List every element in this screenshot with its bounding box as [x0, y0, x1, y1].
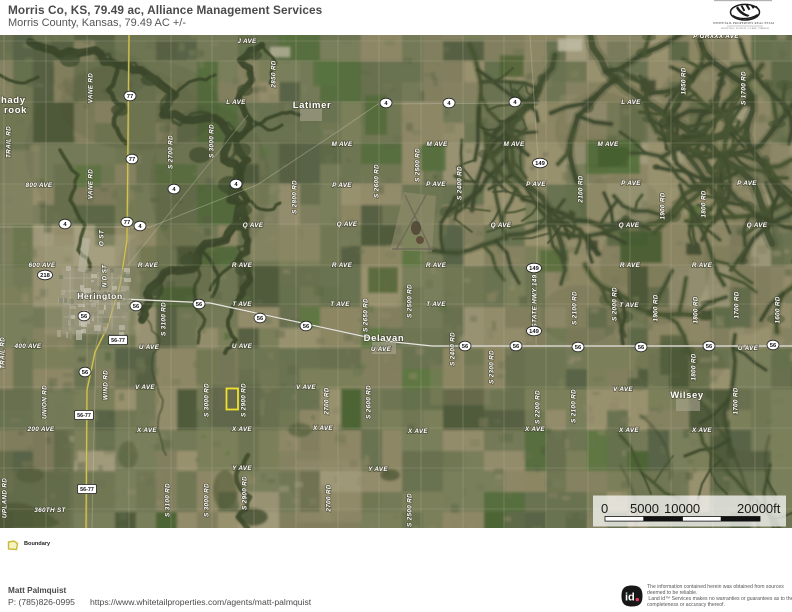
svg-text:56: 56 — [257, 316, 264, 322]
svg-text:U AVE: U AVE — [371, 346, 392, 353]
svg-text:STATE HWY 149: STATE HWY 149 — [531, 274, 538, 327]
svg-text:1700 RD: 1700 RD — [732, 387, 739, 414]
svg-text:TRAIL RD: TRAIL RD — [5, 126, 12, 158]
svg-text:56-77: 56-77 — [111, 338, 125, 344]
svg-text:rook: rook — [4, 105, 27, 116]
svg-text:M AVE: M AVE — [503, 141, 524, 148]
svg-text:S 2650 RD: S 2650 RD — [362, 298, 369, 332]
svg-text:2700 RD: 2700 RD — [325, 484, 332, 512]
svg-text:77: 77 — [129, 157, 135, 163]
svg-text:S 3000 RD: S 3000 RD — [203, 483, 210, 517]
svg-text:S 2500 RD: S 2500 RD — [406, 493, 413, 527]
svg-text:149: 149 — [535, 161, 545, 167]
svg-text:Q AVE: Q AVE — [337, 221, 358, 228]
svg-text:S 3000 RD: S 3000 RD — [203, 383, 210, 417]
svg-text:X AVE: X AVE — [691, 427, 712, 434]
svg-text:P AVE: P AVE — [526, 181, 546, 188]
svg-text:UNION RD: UNION RD — [41, 385, 48, 419]
svg-text:56: 56 — [133, 304, 140, 310]
svg-text:HUNTING | RANCH | FARM | TIMBE: HUNTING | RANCH | FARM | TIMBER — [721, 27, 769, 30]
svg-text:N D ST: N D ST — [101, 264, 108, 288]
svg-text:20000ft: 20000ft — [737, 501, 781, 516]
svg-text:56: 56 — [770, 343, 777, 349]
svg-text:P AVE: P AVE — [621, 180, 641, 187]
svg-text:149: 149 — [529, 266, 539, 272]
svg-text:1850 RD: 1850 RD — [680, 67, 687, 94]
svg-text:56: 56 — [462, 344, 469, 350]
svg-text:0: 0 — [601, 501, 608, 516]
svg-text:R AVE: R AVE — [232, 262, 253, 269]
svg-text:X AVE: X AVE — [312, 425, 333, 432]
svg-text:P AVE: P AVE — [332, 182, 352, 189]
svg-text:Wilsey: Wilsey — [670, 390, 704, 401]
svg-text:S 1700 RD: S 1700 RD — [740, 71, 747, 105]
svg-text:M AVE: M AVE — [331, 141, 352, 148]
svg-text:S 2400 RD: S 2400 RD — [449, 332, 456, 366]
svg-text:56: 56 — [706, 344, 713, 350]
svg-text:Delavan: Delavan — [364, 333, 405, 344]
svg-text:id: id — [625, 592, 635, 604]
svg-text:5000: 5000 — [630, 501, 659, 516]
svg-text:56-77: 56-77 — [80, 487, 94, 493]
svg-text:S 2800 RD: S 2800 RD — [291, 180, 298, 214]
svg-text:800 AVE: 800 AVE — [26, 182, 53, 189]
svg-text:2850 RD: 2850 RD — [270, 60, 277, 88]
svg-text:X AVE: X AVE — [231, 426, 252, 433]
svg-text:1600 RD: 1600 RD — [774, 296, 781, 323]
svg-text:M AVE: M AVE — [597, 141, 618, 148]
svg-text:Herington: Herington — [77, 291, 123, 301]
svg-text:200 AVE: 200 AVE — [27, 426, 55, 433]
svg-text:56: 56 — [82, 370, 89, 376]
svg-text:UPLAND RD: UPLAND RD — [1, 478, 8, 518]
svg-text:S 2600 RD: S 2600 RD — [373, 164, 380, 198]
svg-text:V AVE: V AVE — [613, 386, 633, 393]
svg-text:X AVE: X AVE — [136, 427, 157, 434]
svg-text:O ST: O ST — [98, 229, 105, 246]
svg-text:S 2100 RD: S 2100 RD — [571, 291, 578, 325]
svg-text:R AVE: R AVE — [692, 262, 713, 269]
svg-text:S 2900 RD: S 2900 RD — [241, 476, 248, 510]
svg-text:S 2700 RD: S 2700 RD — [167, 135, 174, 169]
svg-text:L AVE: L AVE — [621, 99, 641, 106]
svg-text:R AVE: R AVE — [332, 262, 353, 269]
svg-text:77: 77 — [124, 220, 130, 226]
svg-text:VANE RD: VANE RD — [87, 169, 94, 199]
svg-text:2100 RD: 2100 RD — [577, 175, 584, 203]
svg-text:J AVE: J AVE — [237, 38, 257, 45]
svg-text:10000: 10000 — [664, 501, 700, 516]
svg-text:56: 56 — [196, 302, 203, 308]
svg-text:56: 56 — [638, 345, 645, 351]
svg-text:T AVE: T AVE — [330, 301, 350, 308]
svg-text:Q AVE: Q AVE — [619, 222, 640, 229]
svg-text:1900 RD: 1900 RD — [652, 294, 659, 321]
svg-text:S 2400 RD: S 2400 RD — [456, 166, 463, 200]
svg-text:S 2200 RD: S 2200 RD — [534, 390, 541, 424]
svg-text:WHITETAIL PROPERTIES REAL ESTA: WHITETAIL PROPERTIES REAL ESTATE — [713, 21, 774, 25]
svg-text:Q AVE: Q AVE — [243, 222, 264, 229]
svg-text:56: 56 — [81, 314, 88, 320]
svg-text:M AVE: M AVE — [426, 141, 447, 148]
svg-text:S 2600 RD: S 2600 RD — [365, 385, 372, 419]
svg-text:V AVE: V AVE — [135, 384, 155, 391]
svg-text:TRAIL RD: TRAIL RD — [0, 337, 6, 369]
svg-text:Y AVE: Y AVE — [232, 465, 252, 472]
svg-text:400 AVE: 400 AVE — [14, 343, 42, 350]
svg-text:U AVE: U AVE — [738, 345, 759, 352]
svg-text:1700 RD: 1700 RD — [733, 291, 740, 318]
svg-text:WIND RD: WIND RD — [102, 370, 109, 400]
svg-text:L AVE: L AVE — [226, 99, 246, 106]
svg-text:S 2900 RD: S 2900 RD — [240, 383, 247, 417]
svg-text:149: 149 — [529, 329, 539, 335]
svg-text:S 3100 RD: S 3100 RD — [164, 483, 171, 517]
svg-text:2700 RD: 2700 RD — [323, 387, 330, 415]
svg-text:Q AVE: Q AVE — [747, 222, 768, 229]
svg-text:X AVE: X AVE — [407, 428, 428, 435]
svg-text:V AVE: V AVE — [296, 384, 316, 391]
svg-text:360TH ST: 360TH ST — [34, 507, 66, 514]
svg-text:U AVE: U AVE — [232, 343, 253, 350]
svg-text:Latimer: Latimer — [293, 100, 332, 111]
svg-text:U AVE: U AVE — [139, 344, 160, 351]
svg-text:Y AVE: Y AVE — [368, 466, 388, 473]
svg-text:S 2500 RD: S 2500 RD — [406, 284, 413, 318]
svg-text:P AVE: P AVE — [737, 180, 757, 187]
svg-text:T AVE: T AVE — [232, 301, 252, 308]
svg-text:R AVE: R AVE — [426, 262, 447, 269]
svg-text:1800 RD: 1800 RD — [692, 296, 699, 323]
svg-text:S 2500 RD: S 2500 RD — [414, 148, 421, 182]
svg-text:56-77: 56-77 — [77, 413, 91, 419]
svg-text:R AVE: R AVE — [138, 262, 159, 269]
svg-text:S 3000 RD: S 3000 RD — [208, 124, 215, 158]
svg-text:P GRXXX AVE: P GRXXX AVE — [693, 35, 739, 40]
svg-text:T AVE: T AVE — [619, 302, 639, 309]
svg-text:T AVE: T AVE — [426, 301, 446, 308]
svg-text:S 3100 RD: S 3100 RD — [160, 302, 167, 336]
svg-text:56: 56 — [575, 345, 582, 351]
svg-text:1900 RD: 1900 RD — [659, 192, 666, 219]
svg-text:VANE RD: VANE RD — [87, 73, 94, 103]
svg-text:56: 56 — [513, 344, 520, 350]
svg-text:600 AVE: 600 AVE — [29, 262, 56, 269]
svg-text:77: 77 — [127, 94, 133, 100]
svg-text:1800 RD: 1800 RD — [690, 353, 697, 380]
svg-text:218: 218 — [40, 273, 50, 279]
svg-text:1800 RD: 1800 RD — [700, 190, 707, 217]
svg-text:S 2300 RD: S 2300 RD — [488, 350, 495, 384]
svg-text:R AVE: R AVE — [620, 262, 641, 269]
svg-text:X AVE: X AVE — [524, 426, 545, 433]
svg-text:S 2100 RD: S 2100 RD — [570, 389, 577, 423]
svg-text:S 2000 RD: S 2000 RD — [611, 287, 618, 321]
svg-text:X AVE: X AVE — [618, 427, 639, 434]
svg-text:Q AVE: Q AVE — [491, 222, 512, 229]
svg-text:56: 56 — [303, 324, 310, 330]
svg-text:P AVE: P AVE — [426, 181, 446, 188]
